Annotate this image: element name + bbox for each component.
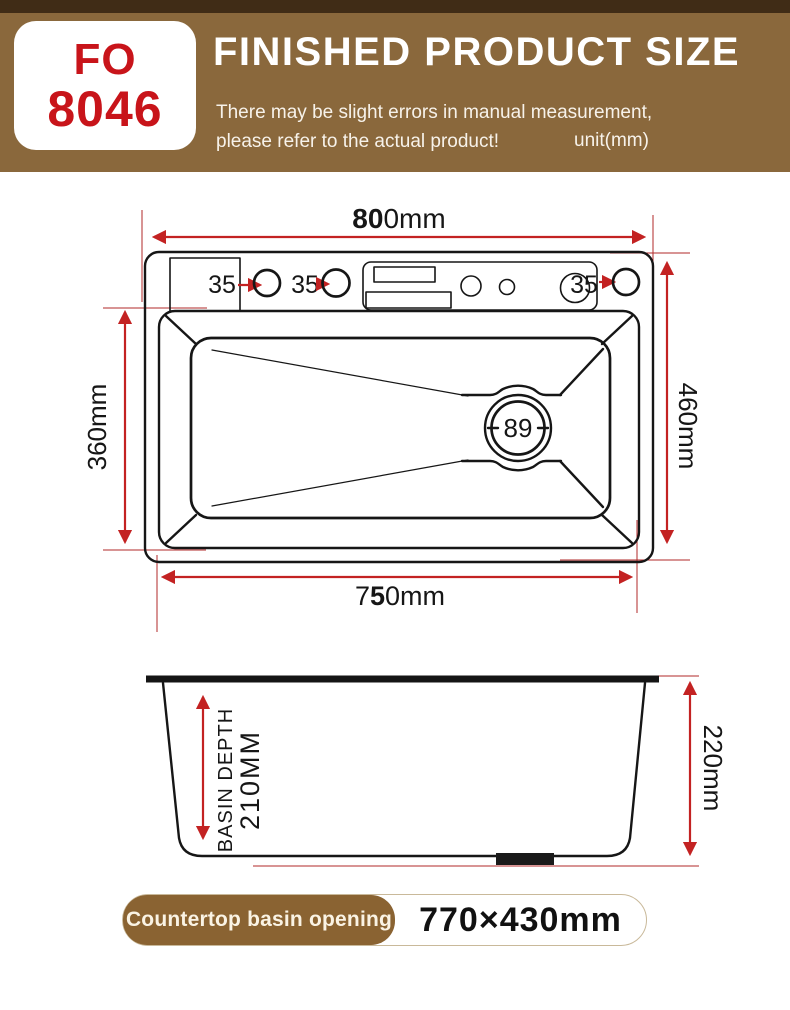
model-code-line2: 8046: [47, 83, 162, 135]
page-title: FINISHED PRODUCT SIZE: [213, 30, 740, 75]
disclaimer-line2: please refer to the actual product!: [216, 131, 499, 152]
dim-bottom-width-label: 750mm: [355, 581, 445, 611]
dim-left-height-label: 360mm: [82, 384, 112, 471]
dim-top-width-label: 800mm: [352, 203, 445, 234]
model-badge: FO 8046: [14, 21, 196, 150]
hole-label-1: 35: [208, 271, 236, 299]
dim-right-height-label: 460mm: [673, 383, 703, 470]
model-code-line1: FO: [73, 37, 136, 83]
side-height-label: 220mm: [698, 725, 728, 812]
drain-stub: [496, 853, 554, 865]
hole-label-3: 35: [570, 271, 598, 299]
drain: 89: [485, 395, 551, 461]
sink-top-view-drawing: 800mm 750mm 360mm 460mm 89: [0, 190, 790, 640]
hole-label-2: 35: [291, 271, 319, 299]
drain-size-label: 89: [504, 413, 533, 443]
panel-slot-upper: [374, 267, 435, 282]
header-top-strip: [0, 0, 790, 13]
depth-label-line1: BASIN DEPTH: [215, 708, 237, 852]
disclaimer-line1: There may be slight errors in manual mea…: [216, 102, 652, 123]
faucet-hole-1: [254, 270, 280, 296]
opening-size-badge: Countertop basin opening 770×430mm: [122, 894, 647, 946]
opening-size-caption: Countertop basin opening: [123, 895, 395, 945]
corner-slope-lines: [166, 316, 632, 543]
sink-side-view-drawing: BASIN DEPTH 210MM 220mm: [0, 650, 790, 885]
panel-slot-lower: [366, 292, 451, 308]
opening-size-value: 770×430mm: [395, 895, 646, 945]
depth-label-line2: 210MM: [235, 730, 265, 830]
sink-rim: [159, 311, 639, 548]
panel-hole-2: [500, 280, 515, 295]
header-banner: FO 8046 FINISHED PRODUCT SIZE There may …: [0, 0, 790, 172]
panel-hole-1: [461, 276, 481, 296]
faucet-hole-3: [613, 269, 639, 295]
unit-note: unit(mm): [574, 130, 649, 152]
deck-center-panel: [363, 262, 597, 310]
page: FO 8046 FINISHED PRODUCT SIZE There may …: [0, 0, 790, 1010]
